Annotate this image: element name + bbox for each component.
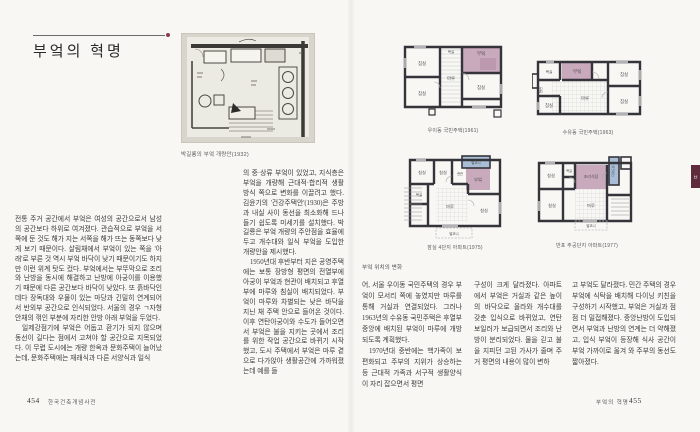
room-label: 욕실 <box>416 192 422 197</box>
sketch-counter <box>204 51 226 63</box>
plan-3-caption: 잠실 4단지 아파트(1975) <box>402 244 508 251</box>
sketch-caption: 박길룡의 부엌 개량안(1932) <box>181 150 315 158</box>
room-label: 침실 <box>620 71 628 77</box>
room-label: 침실 <box>439 169 447 175</box>
room-label: 침실 <box>548 202 556 208</box>
chapter-title-footer: 부엌의 혁명 <box>596 398 629 406</box>
room-label: 부엌 <box>474 176 482 183</box>
paragraph: 전통 주거 공간에서 부엌은 여성의 공간으로서 남성의 공간보다 하위로 여겨… <box>15 215 162 324</box>
room-label: 발코니 <box>471 160 480 165</box>
kitchen-sketch-figure <box>181 33 315 143</box>
paragraph: 1950년대 후반부터 지은 공영주택에는 보통 장방형 평면의 전열부에 아궁… <box>243 258 344 377</box>
room-label: 조리식당 <box>584 173 599 179</box>
page-gutter <box>347 0 355 432</box>
step-stone <box>494 110 501 117</box>
left-column-2: 의 중·상류 부엌이 있었고, 지식층은 부엌을 개량해 근대적·합리적 생활 … <box>243 169 344 377</box>
room-label: 욕실 <box>448 49 454 54</box>
sketch-stove <box>265 49 285 62</box>
index-tab: ㅂ <box>691 165 700 188</box>
paragraph: 일제강점기에 부엌은 어둡고 환기가 되지 않으며 동선이 길다는 점에서 고쳐… <box>15 324 162 364</box>
floor-plan-3: 발코니 부엌 현관 침실 침실 욕실 마루 침실 발코니 <box>402 148 508 247</box>
book-spread: 부엌의 혁명 박길룡의 부엌 개량안(1932) 전통 주거 공간에 <box>0 0 700 432</box>
right-column-1: 어, 서울 우이동 국민주택의 경우 부엌이 모서리 쪽에 놓였지만 마루를 통… <box>362 280 462 390</box>
paragraph: 1970년대 중반에는 핵가족이 보편화되고 주부의 지위가 상승하는 등 근대… <box>362 346 462 390</box>
room-label: 침실 <box>477 84 485 90</box>
room-label: 마루 <box>587 202 595 209</box>
room-label: 침실 <box>545 102 553 108</box>
plan-4-caption: 반포 주공단지 아파트(1977) <box>535 242 639 249</box>
room-label: 부엌 <box>573 68 581 75</box>
room-label: 현관 <box>457 171 463 176</box>
room-label: 마루 <box>447 75 455 82</box>
stairs <box>611 199 629 215</box>
title-rule <box>33 35 165 36</box>
paragraph: 구성이 크게 달라졌다. 아파트에서 부엌은 거실과 같은 높이의 바닥으로 올… <box>474 280 562 368</box>
room-label: 발코니 <box>449 231 458 236</box>
room-label: 부엌 <box>477 50 485 57</box>
room-label: 침실 <box>620 98 628 104</box>
floor-plan-1: 침실 침실 마루 부엌 침실 욕실 <box>402 44 504 129</box>
book-title-footer: 한국건축개념사전 <box>48 398 96 406</box>
kitchen-counter <box>480 58 496 70</box>
room-label: 침실 <box>480 207 488 213</box>
right-page-number: 455 <box>629 396 642 405</box>
kitchen-sketch-drawing <box>181 33 315 143</box>
left-column-1: 전통 주거 공간에서 부엌은 여성의 공간으로서 남성의 공간보다 하위로 여겨… <box>15 215 162 364</box>
room-label: 침실 <box>547 172 555 178</box>
paragraph: 어, 서울 우이동 국민주택의 경우 부엌이 모서리 쪽에 놓였지만 마루를 통… <box>362 280 462 346</box>
floor-plan-4: 침실 욕실 조리식당 다용도실 침실 마루 발코니 <box>535 153 639 240</box>
right-column-2: 구성이 크게 달라졌다. 아파트에서 부엌은 거실과 같은 높이의 바닥으로 올… <box>474 280 562 368</box>
floor-plan-2: 욕실 현관 부엌 마루 침실 침실 침실 <box>532 58 644 125</box>
sketch-sink-counter <box>231 49 261 62</box>
right-column-3: 고 부엌도 달라졌다. 민간 주택의 경우 부엌에 식탁을 배치해 다이닝 키친… <box>572 280 676 368</box>
room-label: 욕실 <box>566 168 572 173</box>
paragraph: 고 부엌도 달라졌다. 민간 주택의 경우 부엌에 식탁을 배치해 다이닝 키친… <box>572 280 676 368</box>
room-label: 마루 <box>446 203 454 210</box>
room-label: 침실 <box>418 90 426 96</box>
step-stone <box>429 109 435 115</box>
plan-2-caption: 수유동 국민주택(1963) <box>532 129 644 136</box>
plan-1-caption: 우이동 국민주택(1961) <box>402 127 504 134</box>
room-label: 발코니 <box>586 223 595 228</box>
index-tab-label: ㅂ <box>693 173 698 181</box>
room-label: 다용도실 <box>610 165 615 176</box>
room-label: 현관 <box>538 87 543 93</box>
room-label: 마루 <box>581 95 589 102</box>
accent-dot-icon <box>166 33 170 37</box>
room-label: 침실 <box>418 60 426 66</box>
room-label: 욕실 <box>546 69 553 74</box>
left-page-number: 454 <box>27 396 40 405</box>
room-label: 침실 <box>418 169 426 175</box>
paragraph: 의 중·상류 부엌이 있었고, 지식층은 부엌을 개량해 근대적·합리적 생활 … <box>243 169 344 258</box>
figure-group-caption: 부엌 위치의 변화 <box>362 263 502 271</box>
page-title: 부엌의 혁명 <box>33 40 124 61</box>
